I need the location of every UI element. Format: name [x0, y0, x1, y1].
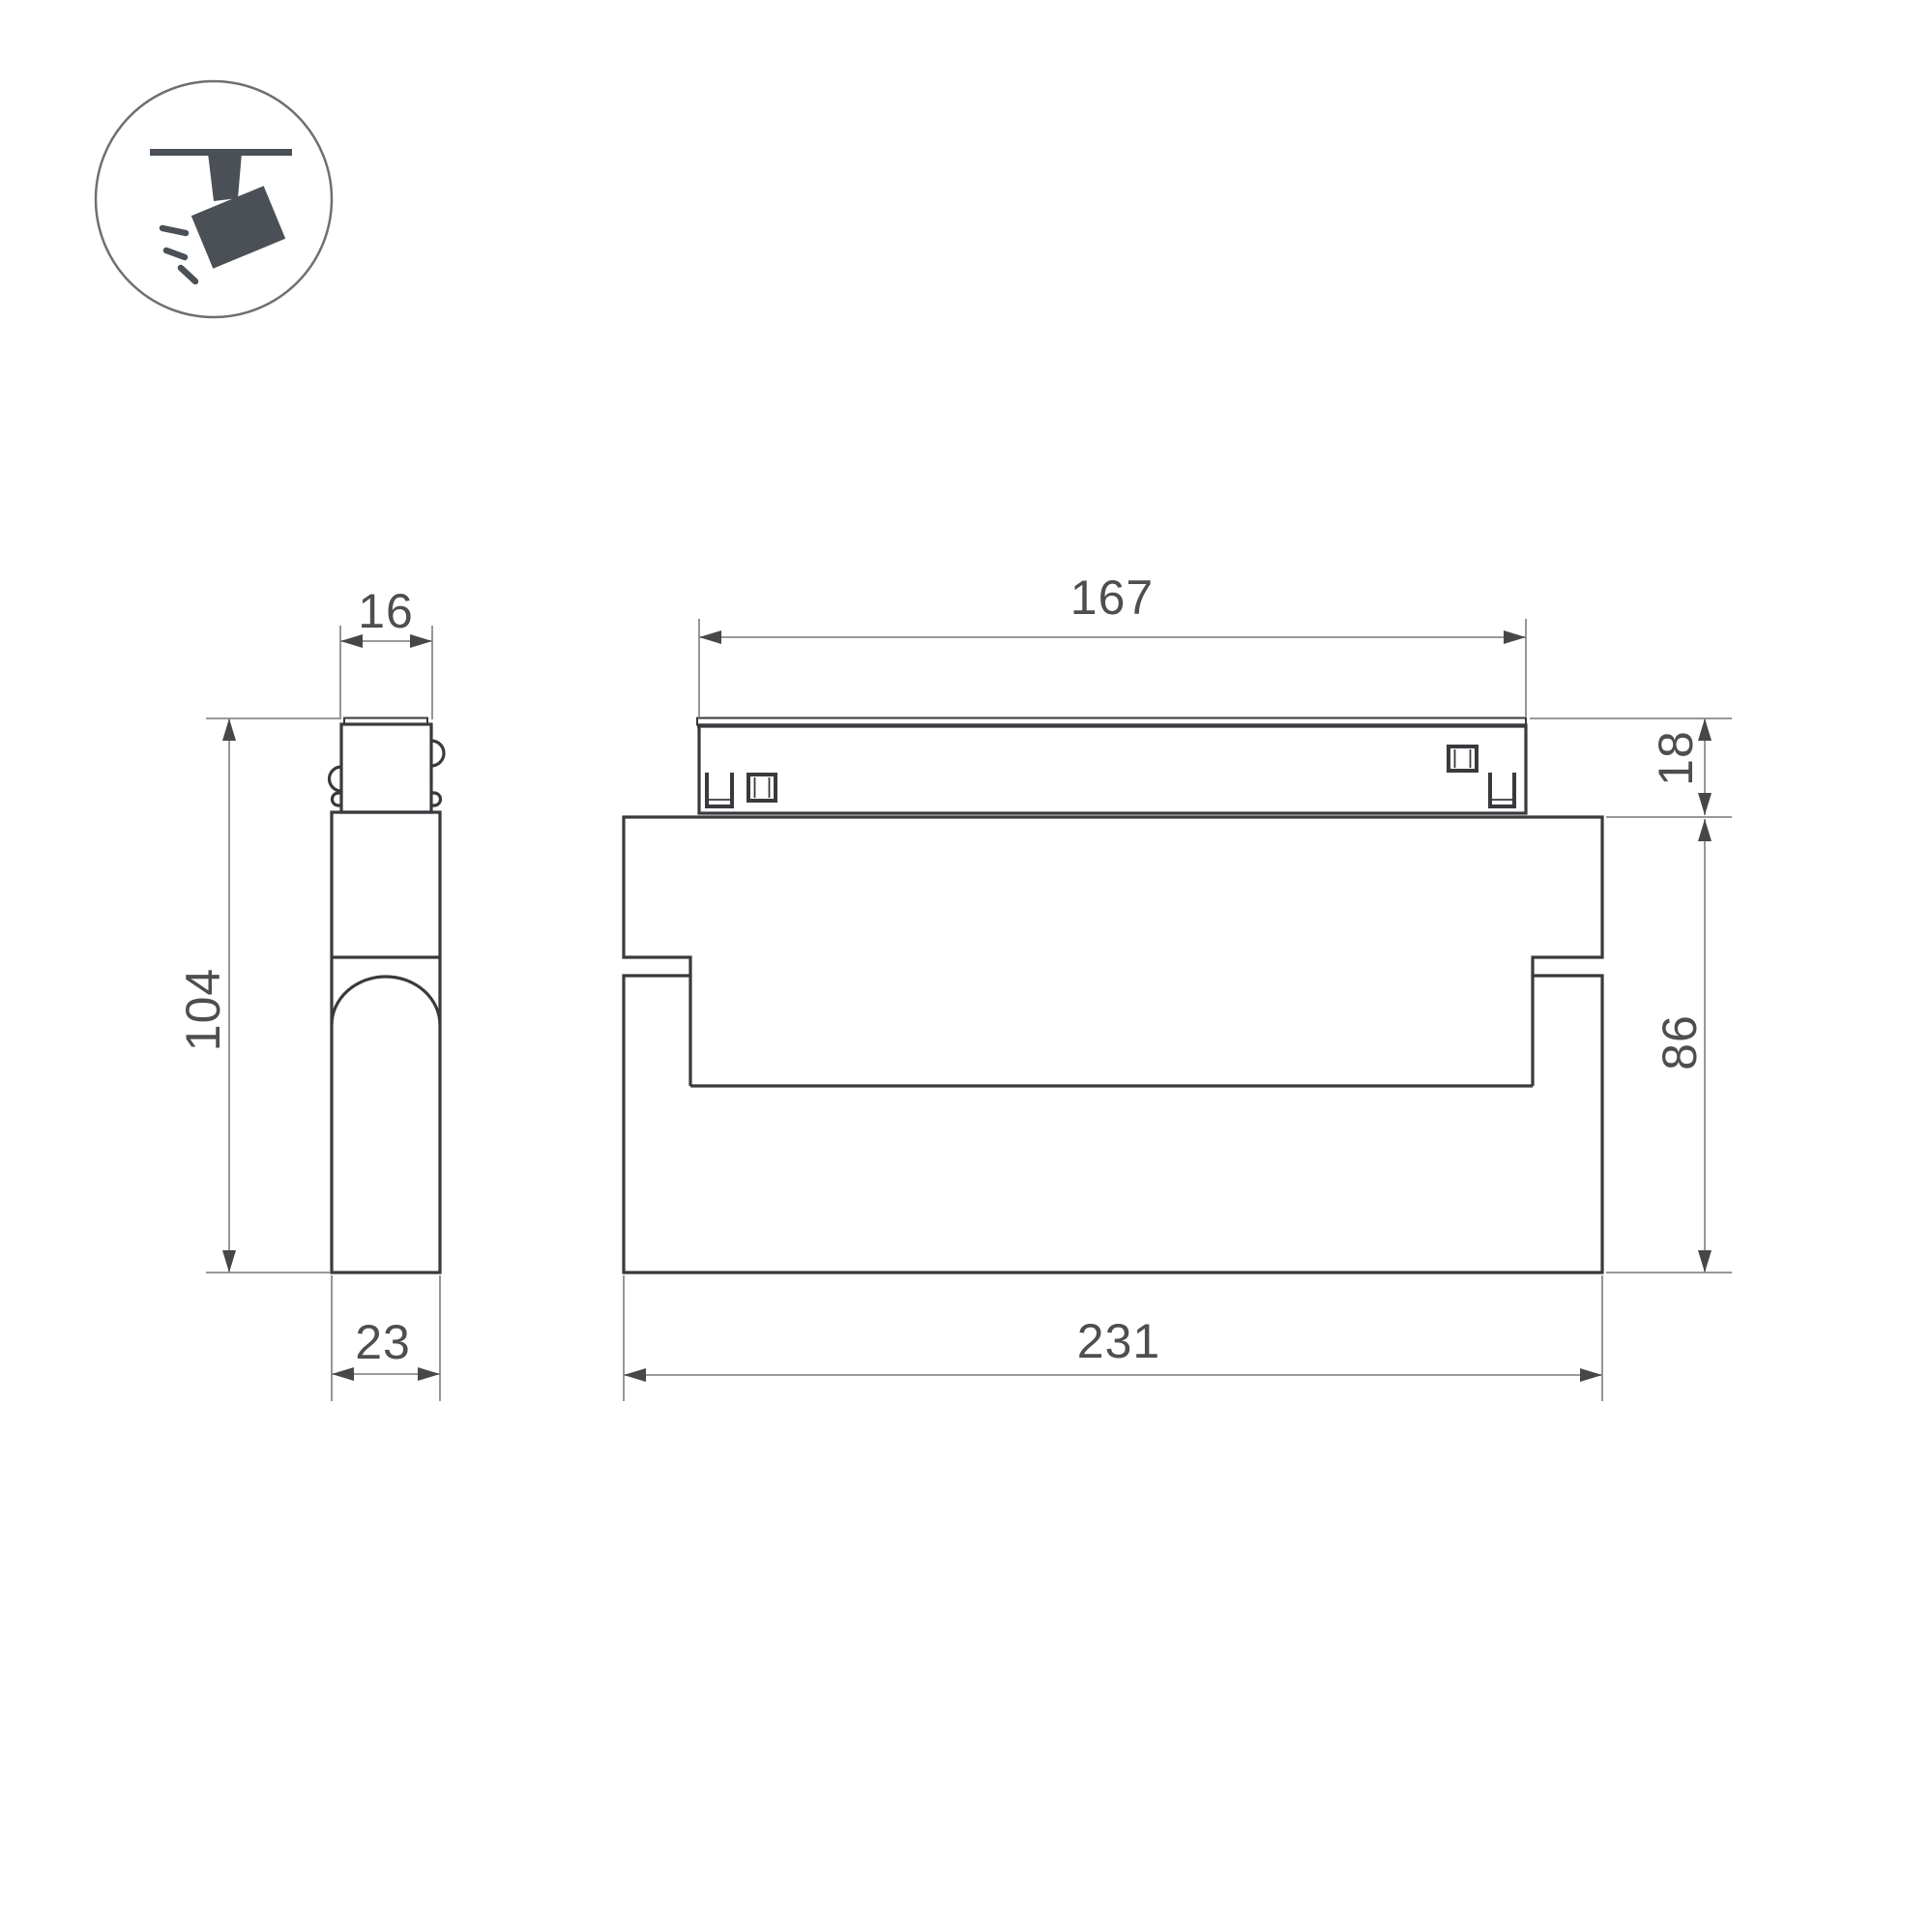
side-body: [332, 812, 440, 1273]
arrowhead: [222, 718, 236, 741]
dim-label-167: 167: [1070, 573, 1154, 622]
side-rotating-head-arc: [332, 977, 440, 1025]
icon-light-ray: [166, 250, 185, 257]
dim-label-18: 18: [1652, 730, 1700, 786]
arrowhead: [1698, 819, 1712, 841]
icon-mount-stem: [208, 153, 242, 201]
arrowhead: [418, 1367, 440, 1381]
arrowhead: [699, 630, 721, 644]
dimension-annotations: [206, 619, 1732, 1401]
dim-label-104: 104: [179, 968, 227, 1051]
arrowhead: [1580, 1368, 1602, 1382]
dim-label-16: 16: [358, 587, 414, 635]
dimension-drawing-svg: [0, 0, 1932, 1932]
arrowhead: [624, 1368, 646, 1382]
dimension-drawing-canvas: 16 104 23 167 18 86 231: [0, 0, 1932, 1932]
track-spotlight-icon: [96, 81, 332, 317]
front-track-connector: [699, 725, 1526, 813]
front-clip-bracket-left: [707, 773, 732, 806]
front-clip-square-right: [1449, 746, 1477, 771]
icon-lamp-head: [191, 186, 285, 269]
front-view: [624, 718, 1602, 1273]
arrowhead: [1698, 793, 1712, 815]
dim-label-23: 23: [355, 1318, 411, 1366]
dim-label-231: 231: [1077, 1317, 1160, 1365]
side-latch-bump-left: [330, 767, 341, 791]
icon-light-ray: [162, 228, 186, 233]
arrowhead: [1504, 630, 1526, 644]
arrowhead: [1698, 1250, 1712, 1273]
front-body-outline: [624, 817, 1602, 1273]
icon-light-ray: [181, 268, 195, 281]
dim-label-86: 86: [1655, 1014, 1704, 1070]
side-track-connector: [341, 724, 431, 812]
front-clip-square-left: [748, 775, 776, 801]
side-view: [330, 718, 444, 1273]
arrowhead: [222, 1250, 236, 1273]
front-clip-bracket-right: [1490, 773, 1514, 806]
arrowhead: [332, 1367, 354, 1381]
side-latch-bump-right: [431, 741, 444, 766]
